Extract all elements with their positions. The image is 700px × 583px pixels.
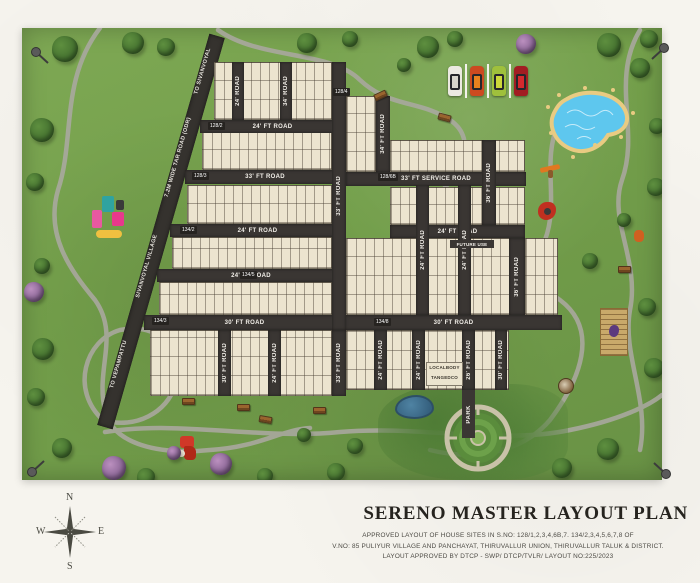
plot-block (187, 185, 332, 224)
push-pin (648, 42, 670, 64)
tree (30, 118, 54, 142)
push-pin (26, 456, 48, 478)
road-33ft-service: 33' FT SERVICE ROAD (346, 172, 526, 186)
tree (122, 32, 144, 54)
compass-rose: N E S W (36, 490, 104, 574)
park-circular-garden (443, 403, 513, 473)
tree (617, 213, 631, 227)
future-use-label: FUTURE USE (450, 240, 494, 248)
survey-marker: 128/2 (208, 122, 225, 130)
playground-slide (178, 436, 198, 462)
plot-block (150, 330, 332, 396)
compass-west-label: W (36, 526, 45, 537)
tree (347, 438, 363, 454)
road-33ft: 33' FT ROAD (332, 330, 346, 396)
tree (582, 253, 598, 269)
road-24: 24' ROAD (232, 62, 244, 120)
survey-marker: 128/4 (333, 88, 350, 96)
tree (649, 118, 662, 134)
park-road: PARK (462, 390, 475, 438)
tree (257, 468, 273, 480)
merry-go-round (558, 378, 574, 394)
road-34ft: 34' FT ROAD (376, 96, 390, 172)
tree (342, 31, 358, 47)
bench (313, 407, 326, 414)
road-24ft: 24' FT ROAD (374, 330, 387, 390)
approval-line-2: V.NO: 85 PULIYUR VILLAGE AND PANCHAYAT, … (308, 542, 688, 553)
tree (597, 438, 619, 460)
road-36ft: 36' FT ROAD (482, 140, 496, 225)
survey-marker: 134/5 (240, 271, 257, 279)
tangedco-label: TANGEDCO (427, 373, 462, 383)
flowering-tree (167, 446, 181, 460)
tree (34, 258, 50, 274)
plot-block (525, 238, 558, 315)
road-24ft: 24' FT ROAD (412, 330, 425, 390)
plot-block (390, 140, 525, 172)
parking-line (509, 64, 511, 98)
road-24ft: 24' FT ROAD (458, 185, 471, 315)
plot-block (159, 282, 332, 315)
approval-line-3: LAYOUT APPROVED BY DTCP - SWP/ DTCP/TVLR… (308, 552, 688, 563)
playground-seesaw (540, 160, 562, 180)
tree (397, 58, 411, 72)
push-pin (30, 46, 52, 68)
flowering-tree (210, 453, 232, 475)
pool (545, 85, 637, 163)
survey-marker: 128/6B (378, 173, 398, 181)
road-33ft: 33' FT ROAD (332, 62, 346, 330)
tree (597, 33, 621, 57)
compass-east-label: E (98, 526, 104, 537)
park-pond (395, 395, 434, 419)
play-equipment (609, 325, 619, 337)
push-pin (650, 458, 672, 480)
tree (137, 468, 155, 480)
tree (157, 38, 175, 56)
tree (297, 33, 317, 53)
tree (552, 458, 572, 478)
site-map-board: TO SIVANVOYAL 7.2M WIDE TAR ROAD (ODR) S… (22, 28, 662, 480)
parking-line (465, 64, 467, 98)
road-33ft: 33' FT ROAD (185, 170, 345, 184)
tree (417, 36, 439, 58)
car-red (514, 66, 528, 96)
title-block: SERENO MASTER LAYOUT PLAN APPROVED LAYOU… (308, 503, 688, 563)
survey-marker: 134/2 (180, 226, 197, 234)
compass-north-label: N (66, 492, 73, 503)
playground-small (632, 228, 646, 244)
car-orange (470, 66, 484, 96)
tree (447, 31, 463, 47)
road-30ft: 30' FT ROAD (495, 330, 507, 390)
flowering-tree (516, 34, 536, 54)
tree (297, 428, 311, 442)
survey-marker: 134/8 (374, 318, 391, 326)
playground-climber (536, 200, 560, 224)
tree (52, 438, 72, 458)
tree (32, 338, 54, 360)
tree (630, 58, 650, 78)
bench (182, 398, 195, 405)
tree (638, 298, 656, 316)
road-24ft: 24' FT ROAD (416, 185, 429, 315)
road-26ft: 26' FT ROAD (462, 330, 475, 390)
plot-block (346, 238, 525, 315)
bench (618, 266, 631, 273)
layout-plan-page: TO SIVANVOYAL 7.2M WIDE TAR ROAD (ODR) S… (0, 0, 700, 583)
car-green (492, 66, 506, 96)
road-34: 34' ROAD (280, 62, 292, 120)
parking-area (448, 64, 528, 98)
wooden-deck (600, 308, 628, 356)
tree (26, 173, 44, 191)
tree (52, 36, 78, 62)
bench (237, 404, 250, 411)
approval-line-1: APPROVED LAYOUT OF HOUSE SITES IN S.NO: … (308, 531, 688, 542)
tree (644, 358, 662, 378)
plan-title: SERENO MASTER LAYOUT PLAN (308, 503, 688, 525)
parking-line (487, 64, 489, 98)
tree (647, 178, 662, 196)
compass-south-label: S (67, 561, 73, 572)
survey-marker: 128/3 (192, 172, 209, 180)
plot-block (202, 132, 332, 170)
tree (327, 463, 345, 480)
plot-block (172, 237, 332, 269)
localbody-label: LOCALBODY (427, 363, 462, 373)
road-24ft: 24' FT ROAD (268, 330, 281, 396)
road-30ft: 30' FT ROAD (144, 315, 345, 330)
utility-plots: LOCALBODY TANGEDCO (426, 362, 463, 386)
park-label: PARK (466, 405, 472, 424)
flowering-tree (102, 456, 126, 480)
flowering-tree (24, 282, 44, 302)
playground-left (88, 196, 130, 244)
road-30ft: 30' FT ROAD (218, 330, 231, 396)
road-36ft: 36' FT ROAD (509, 238, 525, 315)
plot-block (346, 96, 376, 172)
car-white (448, 66, 462, 96)
tree (27, 388, 45, 406)
survey-marker: 134/3 (152, 317, 169, 325)
